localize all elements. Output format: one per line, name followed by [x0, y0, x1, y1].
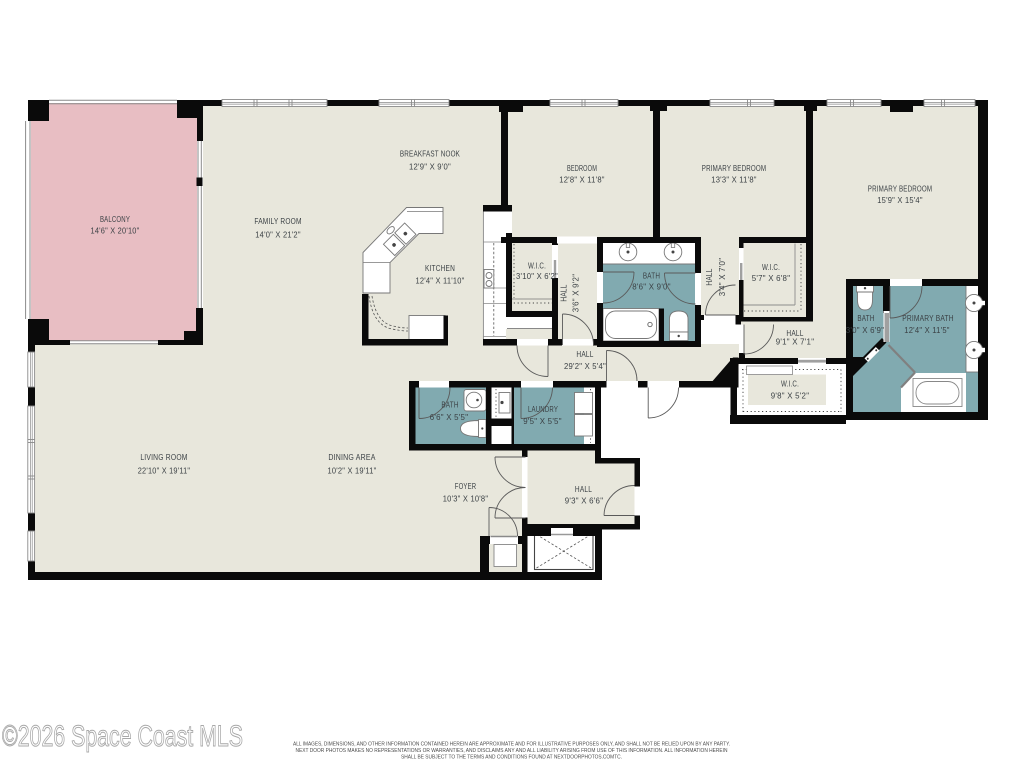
svg-text:3'4" X 7'0": 3'4" X 7'0" [717, 258, 727, 297]
svg-text:HALL: HALL [576, 349, 593, 359]
svg-text:HALL: HALL [704, 268, 714, 285]
svg-text:BATH: BATH [441, 400, 458, 410]
svg-text:PRIMARY BEDROOM: PRIMARY BEDROOM [702, 163, 767, 173]
svg-text:BREAKFAST NOOK: BREAKFAST NOOK [400, 149, 460, 159]
svg-text:PRIMARY BEDROOM: PRIMARY BEDROOM [868, 184, 933, 194]
svg-text:PRIMARY BATH: PRIMARY BATH [902, 313, 954, 323]
svg-text:12'4" X 11'5": 12'4" X 11'5" [904, 325, 950, 335]
svg-text:12'4" X 11'10": 12'4" X 11'10" [416, 276, 465, 286]
svg-text:W.I.C.: W.I.C. [781, 379, 799, 389]
svg-text:SHALL BE SUBJECT TO THE TERMS: SHALL BE SUBJECT TO THE TERMS AND CONDIT… [401, 755, 622, 761]
svg-text:W.I.C.: W.I.C. [762, 262, 780, 272]
svg-text:LAUNDRY: LAUNDRY [528, 404, 558, 414]
svg-text:9'8" X 5'2": 9'8" X 5'2" [771, 391, 810, 401]
svg-text:KITCHEN: KITCHEN [425, 263, 455, 273]
svg-text:9'3" X 6'6": 9'3" X 6'6" [565, 496, 604, 506]
svg-text:8'6" X 9'0": 8'6" X 9'0" [632, 282, 671, 292]
svg-text:29'2" X 5'4": 29'2" X 5'4" [564, 361, 606, 371]
svg-text:22'10" X 19'11": 22'10" X 19'11" [138, 466, 191, 476]
svg-text:12'9" X 9'0": 12'9" X 9'0" [409, 162, 451, 172]
svg-text:W.I.C.: W.I.C. [528, 261, 546, 271]
svg-text:FAMILY ROOM: FAMILY ROOM [254, 216, 301, 226]
svg-text:NEXT DOOR PHOTOS MAKES NO REPR: NEXT DOOR PHOTOS MAKES NO REPRESENTATION… [296, 748, 728, 754]
svg-text:HALL: HALL [559, 284, 569, 301]
svg-text:10'3" X 10'8": 10'3" X 10'8" [443, 494, 489, 504]
svg-text:ALL IMAGES, DIMENSIONS, AND OT: ALL IMAGES, DIMENSIONS, AND OTHER INFORM… [293, 742, 730, 748]
svg-text:BATH: BATH [643, 271, 660, 281]
svg-text:6'6" X 5'5": 6'6" X 5'5" [430, 412, 469, 422]
svg-text:HALL: HALL [575, 484, 592, 494]
svg-text:BATH: BATH [857, 313, 874, 323]
svg-text:BALCONY: BALCONY [100, 214, 130, 224]
svg-text:DINING AREA: DINING AREA [328, 452, 375, 462]
svg-text:14'0" X 21'2": 14'0" X 21'2" [255, 230, 301, 240]
svg-text:15'9" X 15'4": 15'9" X 15'4" [877, 195, 923, 205]
svg-text:©2026 Space Coast MLS: ©2026 Space Coast MLS [2, 720, 243, 753]
svg-text:12'8" X 11'8": 12'8" X 11'8" [559, 175, 605, 185]
svg-text:13'3" X 11'8": 13'3" X 11'8" [711, 175, 757, 185]
svg-text:5'7" X 6'8": 5'7" X 6'8" [752, 273, 791, 283]
svg-text:10'2" X 19'11": 10'2" X 19'11" [328, 466, 377, 476]
svg-text:9'5" X 5'5": 9'5" X 5'5" [523, 416, 562, 426]
svg-text:14'6" X 20'10": 14'6" X 20'10" [91, 226, 140, 236]
svg-text:3'10" X 6'2": 3'10" X 6'2" [516, 271, 558, 281]
svg-text:LIVING ROOM: LIVING ROOM [140, 452, 187, 462]
svg-text:3'0" X 6'9": 3'0" X 6'9" [846, 325, 885, 335]
svg-text:BEDROOM: BEDROOM [567, 163, 597, 173]
svg-text:9'1" X 7'1": 9'1" X 7'1" [776, 337, 815, 347]
svg-text:FOYER: FOYER [455, 481, 477, 491]
svg-text:3'6" X 9'2": 3'6" X 9'2" [571, 274, 581, 313]
